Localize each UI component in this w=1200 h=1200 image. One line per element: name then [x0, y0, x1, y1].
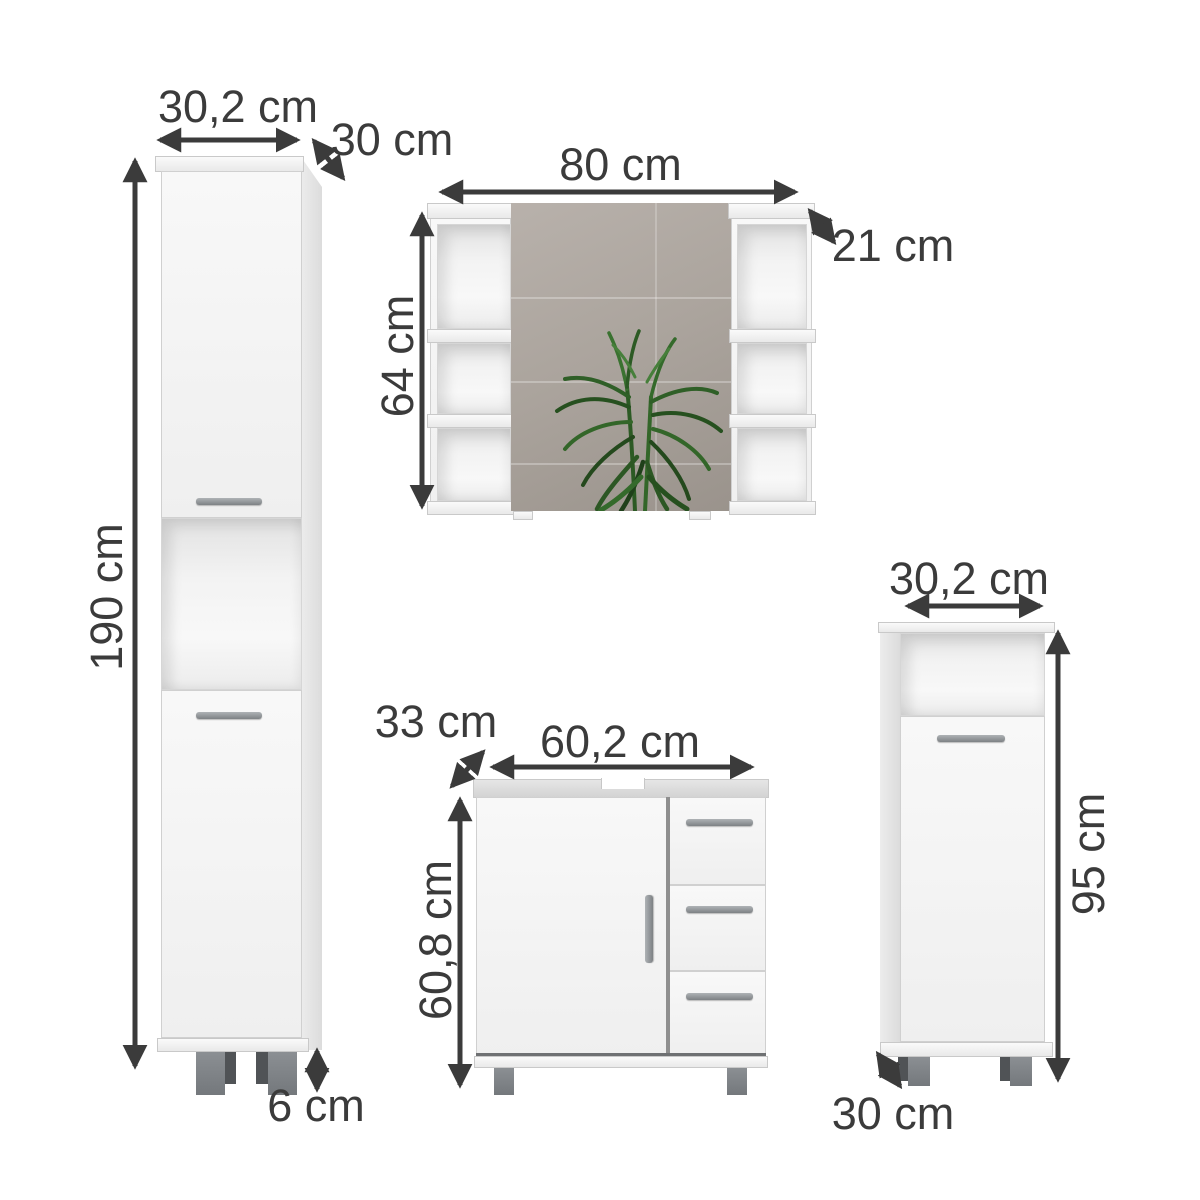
vanity-cabinet-width-label: 60,2 cm [530, 719, 710, 764]
mirror-cabinet-height-label: 64 cm [374, 256, 420, 456]
mirror-cabinet-width-label: 80 cm [543, 142, 698, 187]
side-cabinet-depth-label: 30 cm [829, 1091, 957, 1136]
tall-cabinet-depth-label: 30 cm [328, 117, 456, 162]
tall-cabinet-height-label: 190 cm [83, 497, 129, 697]
mirror-cabinet-depth-label: 21 cm [829, 223, 957, 268]
side-cabinet-height-label: 95 cm [1065, 754, 1111, 954]
vanity-cabinet-depth-label: 33 cm [372, 699, 500, 744]
vanity-depth-arrow [452, 752, 483, 786]
side-cabinet-width-label: 30,2 cm [879, 556, 1059, 601]
tall-cabinet-width-label: 30,2 cm [148, 84, 328, 129]
vanity-cabinet-height-label: 60,8 cm [412, 830, 458, 1050]
tall-cabinet-feet-label: 6 cm [266, 1083, 366, 1128]
furniture-dimension-diagram: 30,2 cm 30 cm 190 cm 6 cm 80 cm 21 cm 64… [0, 0, 1200, 1200]
side-depth-arrow [878, 1054, 900, 1086]
